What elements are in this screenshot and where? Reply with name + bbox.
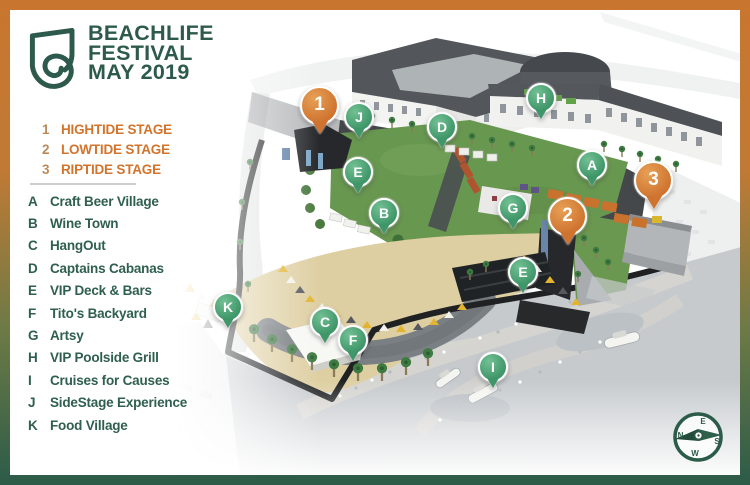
legend-location-row: D Captains Cabanas: [28, 257, 187, 279]
location-key: F: [28, 306, 41, 321]
pin-tail: [517, 283, 529, 293]
location-name: Captains Cabanas: [50, 261, 164, 276]
location-name: Tito's Backyard: [50, 306, 147, 321]
map-pin-e-deck: E: [508, 257, 538, 287]
map-pin-a: A: [577, 150, 607, 180]
map-pin-h: H: [526, 83, 556, 113]
legend-location-row: C HangOut: [28, 235, 187, 257]
location-name: Artsy: [50, 328, 84, 343]
map-pin-e-lawn: E: [343, 157, 373, 187]
map-pin-g: G: [498, 193, 528, 223]
map-pin-b: B: [369, 198, 399, 228]
map-pin-stage-1: 1: [300, 86, 339, 125]
location-key: C: [28, 238, 41, 253]
legend-location-row: H VIP Poolside Grill: [28, 347, 187, 369]
legend-locations: A Craft Beer Village B Wine Town C HangO…: [28, 190, 187, 436]
compass-rose: E N S W: [675, 414, 722, 460]
pin-tail: [507, 219, 519, 229]
pin-tail: [436, 138, 448, 148]
legend-stage-row: 2 LOWTIDE STAGE: [42, 139, 172, 159]
map-pin-c: C: [310, 307, 340, 337]
location-name: SideStage Experience: [50, 395, 187, 410]
stage-number: 2: [42, 142, 53, 157]
pin-tail: [646, 196, 662, 209]
pin-tail: [347, 351, 359, 361]
pin-tail: [352, 183, 364, 193]
stage-name: LOWTIDE STAGE: [61, 142, 170, 157]
location-name: VIP Deck & Bars: [50, 283, 152, 298]
stage-number: 1: [42, 122, 53, 137]
stage-name: HIGHTIDE STAGE: [61, 122, 172, 137]
legend-location-row: E VIP Deck & Bars: [28, 280, 187, 302]
location-key: J: [28, 395, 41, 410]
location-key: A: [28, 194, 41, 209]
legend-divider: [30, 183, 136, 185]
compass-west: W: [691, 449, 699, 458]
poster-canvas: E N S W BEACHLIFE FESTIVAL MAY 2019: [10, 10, 740, 475]
compass-east: E: [700, 417, 706, 426]
location-key: G: [28, 328, 41, 343]
pin-tail: [353, 128, 365, 138]
legend-location-row: A Craft Beer Village: [28, 190, 187, 212]
location-name: VIP Poolside Grill: [50, 350, 159, 365]
pin-tail: [312, 121, 328, 134]
location-key: E: [28, 283, 41, 298]
location-name: Food Village: [50, 418, 128, 433]
pin-tail: [560, 232, 576, 245]
poster-inner: E N S W BEACHLIFE FESTIVAL MAY 2019: [10, 10, 740, 475]
pin-tail: [378, 224, 390, 234]
pin-tail: [222, 318, 234, 328]
map-pin-j: J: [344, 102, 374, 132]
beachlife-wave-mark-icon: [27, 26, 81, 96]
legend-location-row: I Cruises for Causes: [28, 369, 187, 391]
pin-tail: [586, 176, 598, 186]
pin-tail: [487, 378, 499, 388]
legend-location-row: J SideStage Experience: [28, 392, 187, 414]
location-key: I: [28, 373, 41, 388]
legend-stage-row: 3 RIPTIDE STAGE: [42, 159, 172, 179]
location-name: Cruises for Causes: [50, 373, 169, 388]
festival-map-poster: E N S W BEACHLIFE FESTIVAL MAY 2019: [0, 0, 750, 485]
location-key: H: [28, 350, 41, 365]
logo-line-3: MAY 2019: [88, 63, 214, 83]
location-key: B: [28, 216, 41, 231]
location-name: Craft Beer Village: [50, 194, 159, 209]
map-pin-k: K: [213, 292, 243, 322]
legend-stages: 1 HIGHTIDE STAGE 2 LOWTIDE STAGE 3 RIPTI…: [42, 119, 172, 179]
legend-location-row: G Artsy: [28, 324, 187, 346]
legend-location-row: F Tito's Backyard: [28, 302, 187, 324]
stage-name: RIPTIDE STAGE: [61, 162, 161, 177]
location-key: K: [28, 418, 41, 433]
pin-tail: [319, 333, 331, 343]
legend-location-row: B Wine Town: [28, 212, 187, 234]
beachlife-logo: BEACHLIFE FESTIVAL MAY 2019: [27, 24, 214, 96]
compass-south: S: [714, 437, 720, 446]
map-pin-d: D: [427, 112, 457, 142]
map-pin-stage-3: 3: [634, 161, 673, 200]
stage-number: 3: [42, 162, 53, 177]
legend-stage-row: 1 HIGHTIDE STAGE: [42, 119, 172, 139]
logo-text: BEACHLIFE FESTIVAL MAY 2019: [88, 24, 214, 96]
location-name: Wine Town: [50, 216, 118, 231]
pin-tail: [535, 109, 547, 119]
location-name: HangOut: [50, 238, 106, 253]
map-pin-i: I: [478, 352, 508, 382]
location-key: D: [28, 261, 41, 276]
map-pin-stage-2: 2: [548, 197, 587, 236]
map-pin-f: F: [338, 325, 368, 355]
legend-location-row: K Food Village: [28, 414, 187, 436]
compass-north: N: [678, 431, 684, 440]
